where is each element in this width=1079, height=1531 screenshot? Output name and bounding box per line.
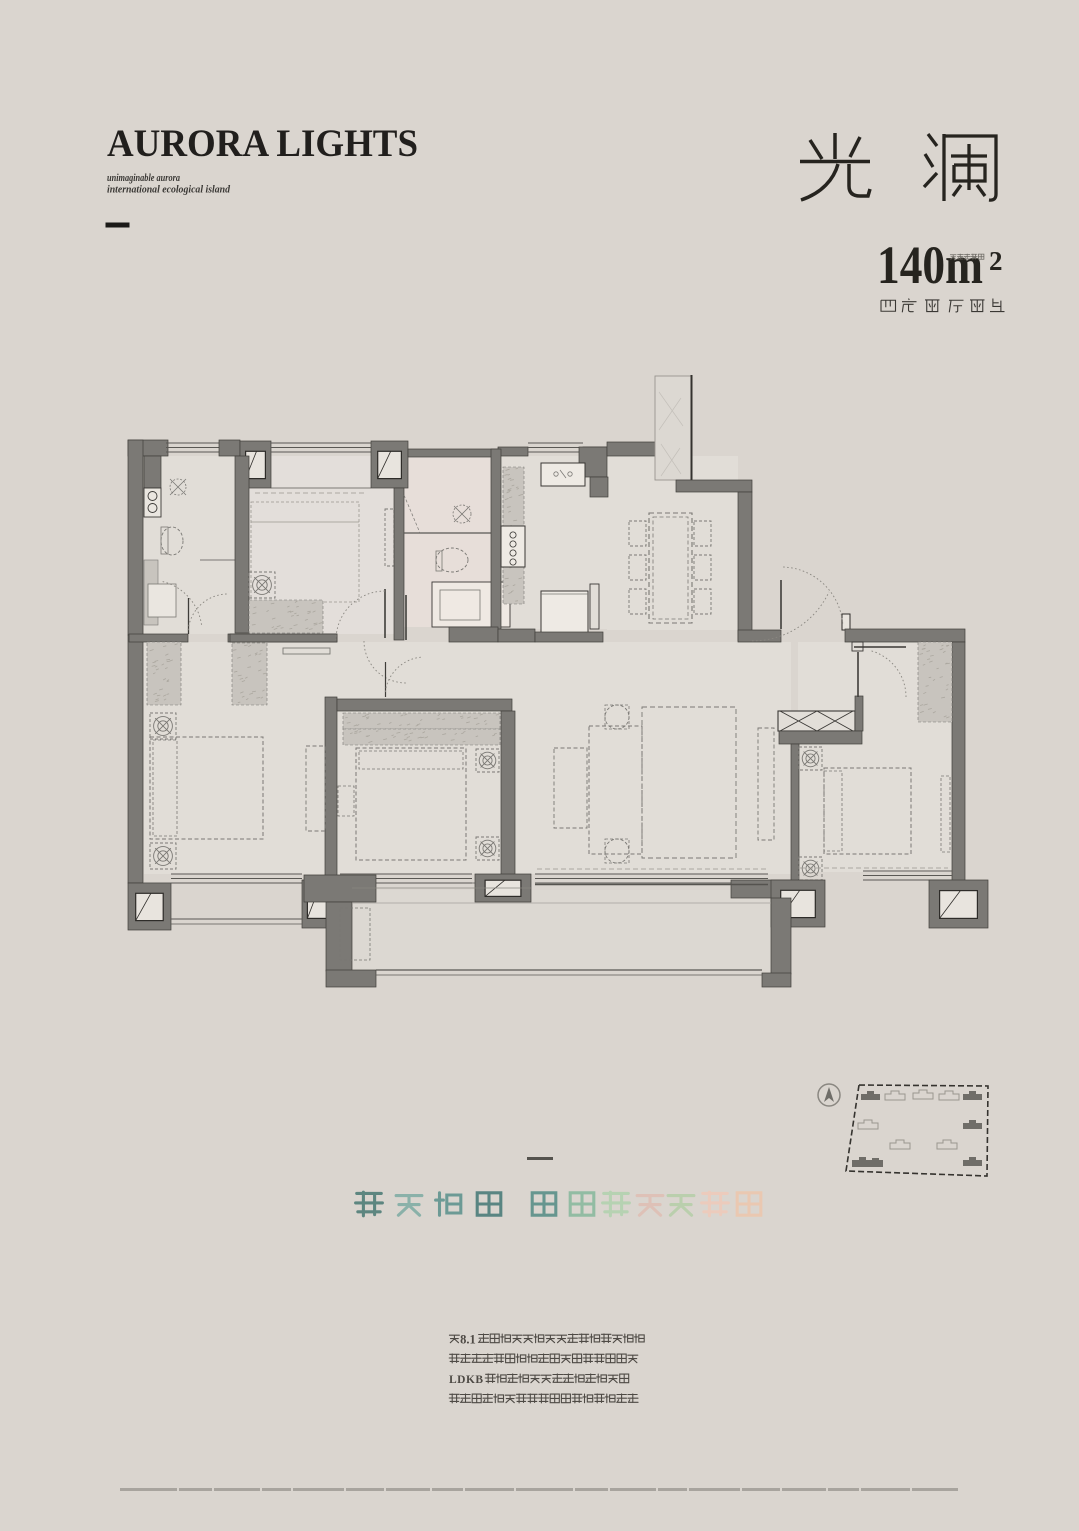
svg-text:LDKB: LDKB bbox=[449, 1374, 484, 1386]
svg-text:140m: 140m bbox=[877, 235, 983, 295]
svg-text:AURORA LIGHTS: AURORA LIGHTS bbox=[107, 122, 418, 165]
svg-text:unimaginable aurora: unimaginable aurora bbox=[107, 173, 180, 184]
svg-text:2: 2 bbox=[989, 246, 1003, 276]
svg-text:8.1: 8.1 bbox=[460, 1332, 476, 1346]
svg-text:international ecological islan: international ecological island bbox=[107, 185, 231, 196]
